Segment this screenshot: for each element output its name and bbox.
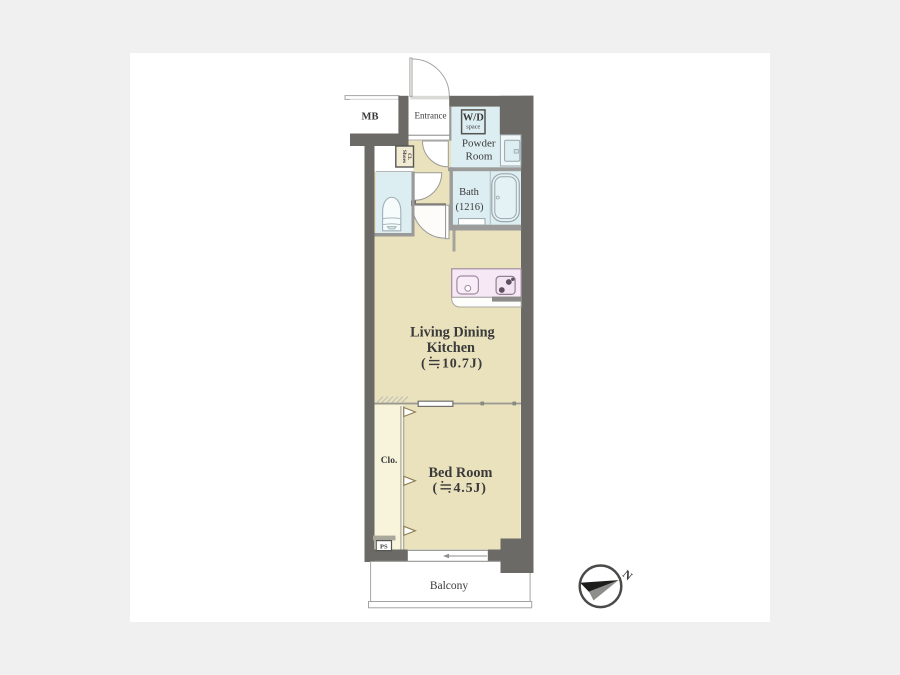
svg-text:(: (	[421, 356, 426, 371]
svg-text:Balcony: Balcony	[430, 580, 469, 592]
svg-text:MB: MB	[362, 112, 379, 123]
svg-text:Living Dining: Living Dining	[410, 324, 495, 340]
svg-text:Powder: Powder	[462, 138, 496, 150]
svg-text:Shoes: Shoes	[401, 150, 407, 163]
svg-text:10.7J): 10.7J)	[442, 356, 483, 371]
svg-text:(1216): (1216)	[456, 202, 484, 213]
svg-text:space: space	[466, 124, 480, 131]
svg-text:Kitchen: Kitchen	[427, 340, 475, 356]
svg-text:W/D: W/D	[463, 113, 484, 124]
svg-text:PS: PS	[380, 543, 388, 550]
svg-text:Bed Room: Bed Room	[429, 465, 493, 481]
svg-text:Entrance: Entrance	[415, 111, 447, 121]
svg-text:Cl.: Cl.	[406, 153, 412, 160]
svg-text:Clo.: Clo.	[381, 456, 398, 466]
svg-text:Bath: Bath	[459, 187, 480, 198]
svg-text:(: (	[433, 481, 438, 496]
svg-text:Room: Room	[466, 151, 493, 163]
svg-text:4.5J): 4.5J)	[454, 481, 487, 496]
